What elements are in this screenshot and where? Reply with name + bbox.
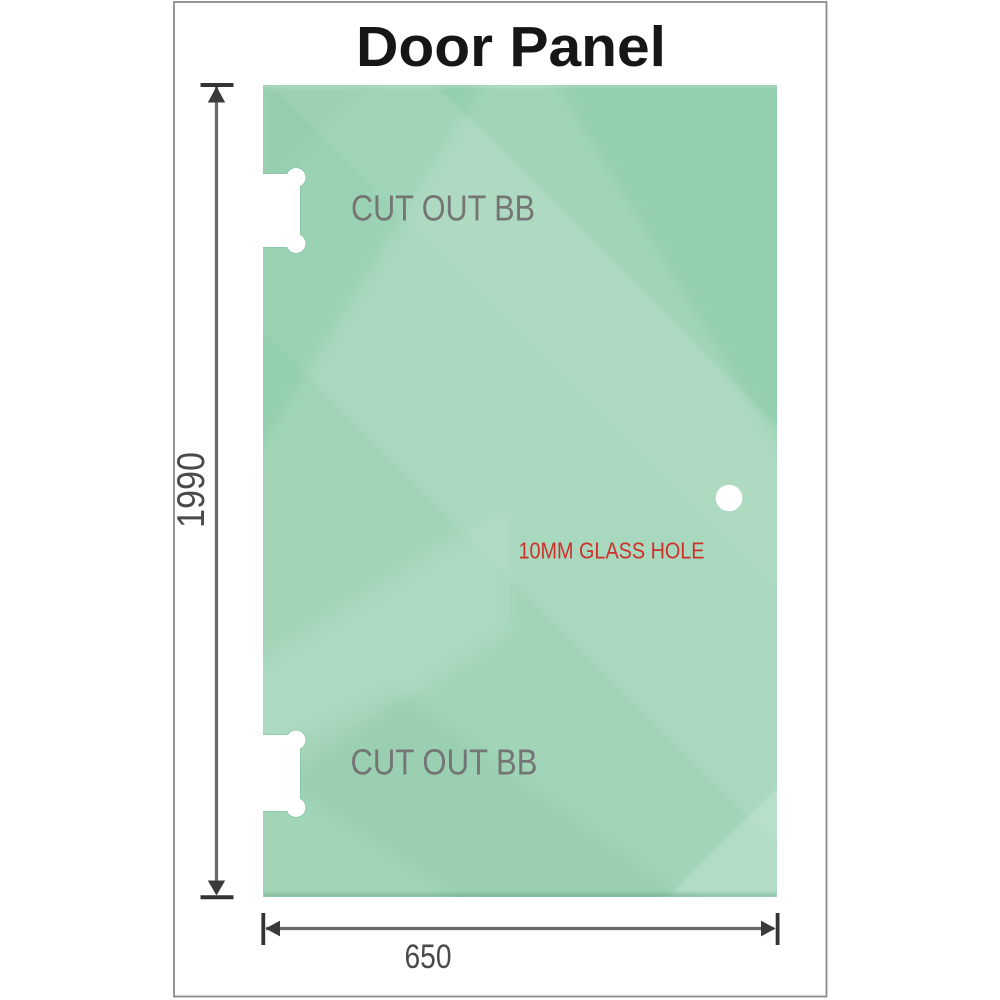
svg-text:650: 650 <box>405 938 452 976</box>
svg-text:CUT OUT BB: CUT OUT BB <box>351 188 535 229</box>
svg-text:10MM GLASS HOLE: 10MM GLASS HOLE <box>519 538 705 564</box>
svg-text:Door Panel: Door Panel <box>356 15 666 79</box>
svg-text:CUT OUT BB: CUT OUT BB <box>351 742 538 783</box>
svg-text:1990: 1990 <box>170 452 213 528</box>
